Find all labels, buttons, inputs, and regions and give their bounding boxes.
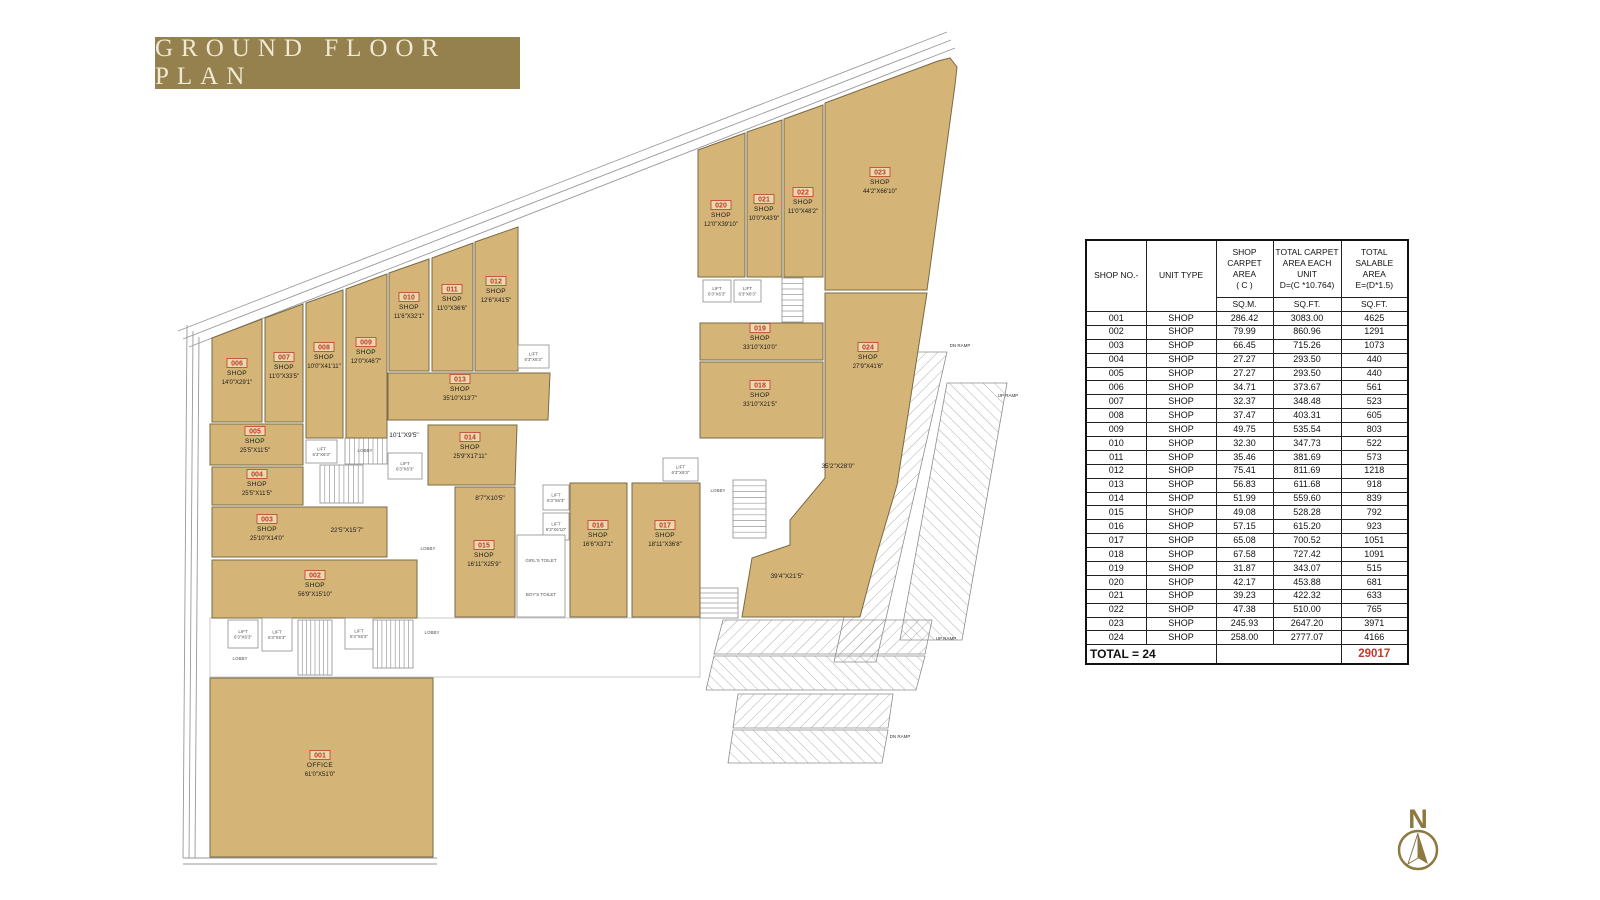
unit-type-label: SHOP (245, 438, 265, 445)
table-cell: 009 (1086, 423, 1146, 437)
table-cell: 923 (1341, 520, 1408, 534)
table-row: 001SHOP286.423083.004625 (1086, 312, 1408, 326)
unit-dimension: 10'0"X43'9" (749, 216, 780, 222)
table-cell: 522 (1341, 437, 1408, 451)
unit-number: 001 (314, 753, 326, 760)
table-cell: 860.96 (1273, 325, 1341, 339)
unit-dimension: 61'0"X51'0" (305, 772, 336, 778)
unit-number: 022 (797, 190, 809, 197)
table-cell: SHOP (1146, 548, 1216, 562)
ramp-label: DN RAMP (890, 734, 911, 739)
ramp-hatch (714, 620, 932, 654)
table-cell: 918 (1341, 478, 1408, 492)
room-label: LIFT (529, 352, 539, 357)
room-label: LIFT (238, 629, 248, 634)
column-header: TOTAL SALABLEAREAE=(D*1.5) (1341, 240, 1408, 298)
table-cell: 023 (1086, 617, 1146, 631)
table-cell: 4166 (1341, 631, 1408, 645)
table-cell: 605 (1341, 409, 1408, 423)
table-cell: 440 (1341, 367, 1408, 381)
room-label: LIFT (354, 629, 364, 634)
unit-type-label: SHOP (227, 370, 247, 377)
room-label: LIFT (712, 286, 722, 291)
table-row: 023SHOP245.932647.203971 (1086, 617, 1408, 631)
dimension-text: 39'4"X21'5" (770, 573, 804, 580)
dimension-text: 8'7"X10'5" (475, 495, 505, 502)
table-cell: 3083.00 (1273, 312, 1341, 326)
room-label: LIFT (551, 522, 561, 527)
table-cell: SHOP (1146, 506, 1216, 520)
unit-type-label: SHOP (460, 444, 480, 451)
shop-unit: 018SHOP33'10"X21'5" (700, 362, 823, 438)
table-row: 022SHOP47.38510.00765 (1086, 603, 1408, 617)
shop-unit: 002SHOP56'9"X15'10" (212, 560, 417, 618)
unit-number: 012 (490, 279, 502, 286)
table-row: 005SHOP27.27293.50440 (1086, 367, 1408, 381)
table-cell: 633 (1341, 589, 1408, 603)
unit-type-label: SHOP (314, 354, 334, 361)
unit-number: 002 (309, 573, 321, 580)
shop-unit: 004SHOP25'5"X11'5" (212, 467, 303, 505)
table-cell: 611.68 (1273, 478, 1341, 492)
room: LIFT6'3"X6'3" (518, 345, 549, 368)
staircase (298, 620, 332, 675)
table-cell: SHOP (1146, 589, 1216, 603)
column-header: SHOP NO.- (1086, 240, 1146, 312)
table-cell: 003 (1086, 339, 1146, 353)
unit-number: 015 (478, 543, 490, 550)
table-cell: 715.26 (1273, 339, 1341, 353)
unit-dimension: 35'10"X13'7" (443, 396, 477, 402)
table-cell: 1051 (1341, 534, 1408, 548)
room: LIFT6'3"X6'3" (345, 618, 373, 649)
table-cell: 27.27 (1216, 367, 1273, 381)
unit-number: 006 (231, 361, 243, 368)
table-cell: SHOP (1146, 423, 1216, 437)
room-label: LIFT (676, 465, 686, 470)
room-label: 6'3"X6'10" (546, 527, 567, 532)
unit-type-label: SHOP (754, 206, 774, 213)
table-cell: 010 (1086, 437, 1146, 451)
table-cell: 65.08 (1216, 534, 1273, 548)
room-label: LIFT (400, 461, 410, 466)
table-row: 013SHOP56.83611.68918 (1086, 478, 1408, 492)
room-label: LIFT (743, 286, 753, 291)
table-cell: 56.83 (1216, 478, 1273, 492)
table-cell: 348.48 (1273, 395, 1341, 409)
table-cell: 75.41 (1216, 464, 1273, 478)
table-row: 014SHOP51.99559.60839 (1086, 492, 1408, 506)
unit-dimension: 10'0"X41'11" (307, 364, 340, 370)
dimension-text: 10'1"X9'5" (389, 432, 419, 439)
unit-number: 005 (249, 429, 261, 436)
table-cell: 453.88 (1273, 575, 1341, 589)
room-label: 6'3"X6'3" (350, 634, 368, 639)
table-row: 018SHOP67.58727.421091 (1086, 548, 1408, 562)
table-cell: 681 (1341, 575, 1408, 589)
room-label: 6'3"X6'3" (672, 470, 690, 475)
table-cell: 012 (1086, 464, 1146, 478)
table-cell: SHOP (1146, 409, 1216, 423)
table-row: 006SHOP34.71373.67561 (1086, 381, 1408, 395)
unit-number: 003 (261, 517, 273, 524)
unit-number: 020 (715, 203, 727, 210)
unit-dimension: 33'10"X21'5" (743, 402, 777, 408)
table-cell: 51.99 (1216, 492, 1273, 506)
area-label: LOBBY (357, 448, 372, 453)
table-row: 015SHOP49.08528.28792 (1086, 506, 1408, 520)
north-arrow: N (1399, 804, 1437, 869)
table-cell: 49.75 (1216, 423, 1273, 437)
table-cell: SHOP (1146, 450, 1216, 464)
unit-type-label: SHOP (655, 532, 675, 539)
table-cell: 727.42 (1273, 548, 1341, 562)
table-cell: 811.69 (1273, 464, 1341, 478)
shop-unit: 008SHOP10'0"X41'11" (306, 290, 343, 438)
shop-unit: 009SHOP12'0"X46'7" (346, 274, 387, 438)
shop-area (265, 304, 303, 422)
table-cell: 1218 (1341, 464, 1408, 478)
unit-dimension: 16'6"X37'1" (583, 542, 614, 548)
table-cell: SHOP (1146, 464, 1216, 478)
table-total-row: TOTAL = 2429017 (1086, 645, 1408, 665)
table-cell: 49.08 (1216, 506, 1273, 520)
room-label: 6'3"X6'3" (313, 452, 331, 457)
table-row: 017SHOP65.08700.521051 (1086, 534, 1408, 548)
unit-type-label: SHOP (858, 354, 878, 361)
table-cell: 67.58 (1216, 548, 1273, 562)
table-cell: 006 (1086, 381, 1146, 395)
table-cell: 013 (1086, 478, 1146, 492)
room: LIFT6'3"X6'3" (543, 485, 569, 510)
table-cell: SHOP (1146, 520, 1216, 534)
unit-number: 023 (874, 170, 886, 177)
table-cell: SHOP (1146, 367, 1216, 381)
table-cell: 66.45 (1216, 339, 1273, 353)
area-label: BOY'S TOILET (526, 592, 556, 597)
table-cell: 765 (1341, 603, 1408, 617)
table-cell: 528.28 (1273, 506, 1341, 520)
unit-dimension: 12'6"X41'5" (481, 298, 512, 304)
shop-unit: 010SHOP11'6"X32'1" (389, 259, 429, 371)
table-cell: 017 (1086, 534, 1146, 548)
ramp-hatch (706, 656, 925, 690)
table-cell: 39.23 (1216, 589, 1273, 603)
shop-unit: 014SHOP25'9"X17'11" (428, 425, 517, 485)
boundary-line (183, 325, 187, 858)
shop-unit: 023SHOP44'2"X66'10" (825, 58, 957, 290)
room-label: 6'3"X6'3" (739, 292, 757, 297)
table-cell: 422.32 (1273, 589, 1341, 603)
shop-area (700, 362, 823, 438)
room: LIFT6'3"X6'3" (262, 618, 292, 651)
unit-dimension: 18'11"X36'8" (648, 542, 681, 548)
shop-unit: 012SHOP12'6"X41'5" (475, 227, 518, 371)
table-cell: 005 (1086, 367, 1146, 381)
unit-dimension: 11'0"X48'2" (788, 209, 818, 215)
shop-unit: 016SHOP16'6"X37'1" (570, 483, 627, 617)
table-row: 004SHOP27.27293.50440 (1086, 353, 1408, 367)
room-label: LIFT (272, 630, 282, 635)
area-label: LOBBY (424, 630, 439, 635)
unit-dimension: 44'2"X66'10" (863, 189, 897, 195)
table-cell: 535.54 (1273, 423, 1341, 437)
unit-dimension: 16'11"X25'9" (467, 562, 500, 568)
table-row: 012SHOP75.41811.691218 (1086, 464, 1408, 478)
room: LIFT6'3"X6'3" (228, 620, 258, 648)
table-cell: 286.42 (1216, 312, 1273, 326)
table-row: 016SHOP57.15615.20923 (1086, 520, 1408, 534)
table-cell: 020 (1086, 575, 1146, 589)
table-cell: 792 (1341, 506, 1408, 520)
unit-number: 010 (403, 295, 415, 302)
table-cell: 515 (1341, 562, 1408, 576)
unit-number: 007 (278, 355, 290, 362)
table-cell: 011 (1086, 450, 1146, 464)
shop-unit: 015SHOP16'11"X25'9" (455, 487, 515, 617)
unit-type-label: SHOP (588, 532, 608, 539)
unit-dimension: 14'0"X29'1" (222, 380, 253, 386)
unit-number: 016 (592, 523, 604, 530)
ramp-label: UP RAMP (998, 393, 1018, 398)
table-cell: 573 (1341, 450, 1408, 464)
table-cell: 803 (1341, 423, 1408, 437)
unit-type-label: SHOP (793, 199, 813, 206)
table-cell: 3971 (1341, 617, 1408, 631)
table-cell: 373.67 (1273, 381, 1341, 395)
shop-area (632, 483, 700, 617)
table-cell: SHOP (1146, 603, 1216, 617)
table-row: 020SHOP42.17453.88681 (1086, 575, 1408, 589)
room-outline (517, 535, 565, 617)
shop-area (825, 58, 957, 290)
boundary-line (189, 331, 193, 858)
unit-number: 017 (659, 523, 671, 530)
table-cell: 001 (1086, 312, 1146, 326)
table-row: 021SHOP39.23422.32633 (1086, 589, 1408, 603)
shop-unit: 005SHOP25'5"X11'5" (210, 424, 303, 465)
column-header: SHOPCARPETAREA( C ) (1216, 240, 1273, 298)
room: LIFT6'3"X6'3" (388, 453, 422, 479)
unit-type-label: SHOP (442, 296, 462, 303)
total-spacer (1216, 645, 1341, 665)
unit-type-label: SHOP (399, 304, 419, 311)
north-letter: N (1408, 804, 1428, 834)
unit-type-label: SHOP (305, 582, 325, 589)
unit-number: 004 (251, 472, 263, 479)
table-cell: 37.47 (1216, 409, 1273, 423)
unit-type-label: SHOP (474, 552, 494, 559)
north-pointer-light (1408, 833, 1418, 864)
table-cell: 42.17 (1216, 575, 1273, 589)
table-cell: SHOP (1146, 312, 1216, 326)
shop-unit: 006SHOP14'0"X29'1" (212, 319, 262, 422)
column-header: UNIT TYPE (1146, 240, 1216, 312)
area-label: GIRL'S TOILET (525, 558, 556, 563)
staircase (373, 620, 413, 668)
ramp-hatch (733, 694, 893, 728)
table-cell: 024 (1086, 631, 1146, 645)
table-cell: 004 (1086, 353, 1146, 367)
unit-type-label: SHOP (711, 212, 731, 219)
table-cell: 440 (1341, 353, 1408, 367)
table-cell: 014 (1086, 492, 1146, 506)
total-salable-value: 29017 (1341, 645, 1408, 665)
unit-number: 021 (758, 197, 770, 204)
table-cell: SHOP (1146, 575, 1216, 589)
shop-unit: 013SHOP35'10"X13'7" (388, 373, 550, 420)
shop-unit: 022SHOP11'0"X48'2" (784, 105, 823, 277)
table-cell: SHOP (1146, 492, 1216, 506)
table-row: 008SHOP37.47403.31605 (1086, 409, 1408, 423)
table-cell: SHOP (1146, 353, 1216, 367)
unit-number: 018 (754, 383, 766, 390)
room: LIFT6'3"X6'3" (663, 458, 698, 481)
table-cell: 839 (1341, 492, 1408, 506)
unit-dimension: 25'5"X11'5" (242, 491, 272, 497)
room-label: 6'3"X6'3" (396, 467, 414, 472)
unit-number: 009 (360, 340, 372, 347)
unit-dimension: 25'10"X14'0" (250, 536, 284, 542)
unit-number: 008 (318, 345, 330, 352)
table-cell: 403.31 (1273, 409, 1341, 423)
staircase (320, 465, 363, 503)
table-cell: 245.93 (1216, 617, 1273, 631)
ramp-hatch (728, 730, 888, 763)
shop-unit: 017SHOP18'11"X36'8" (632, 483, 700, 617)
area-table: SHOP NO.-UNIT TYPESHOPCARPETAREA( C )TOT… (1085, 239, 1409, 665)
table-cell: 347.73 (1273, 437, 1341, 451)
room-label: 6'3"X6'3" (547, 498, 565, 503)
unit-type-label: SHOP (247, 481, 267, 488)
table-row: 024SHOP258.002777.074166 (1086, 631, 1408, 645)
unit-type-label: SHOP (750, 392, 770, 399)
dimension-text: 22'5"X15'7" (330, 527, 364, 534)
table-cell: 2647.20 (1273, 617, 1341, 631)
table-cell: 007 (1086, 395, 1146, 409)
room: LIFT6'3"X6'3" (734, 280, 761, 302)
staircase (782, 278, 803, 322)
room-label: 6'3"X6'3" (525, 357, 543, 362)
shop-area (212, 560, 417, 618)
table-cell: SHOP (1146, 478, 1216, 492)
unit-dimension: 33'10"X10'0" (743, 345, 777, 351)
table-cell: 008 (1086, 409, 1146, 423)
table-cell: 016 (1086, 520, 1146, 534)
room-label: LIFT (551, 493, 561, 498)
table-cell: 79.99 (1216, 325, 1273, 339)
table-cell: 615.20 (1273, 520, 1341, 534)
room (517, 535, 565, 617)
column-header: TOTAL CARPETAREA EACH UNITD=(C *10.764) (1273, 240, 1341, 298)
unit-number: 019 (754, 326, 766, 333)
table-row: 009SHOP49.75535.54803 (1086, 423, 1408, 437)
table-cell: 1073 (1341, 339, 1408, 353)
table-cell: SHOP (1146, 325, 1216, 339)
column-subheader: SQ.FT. (1341, 298, 1408, 312)
table-cell: 35.46 (1216, 450, 1273, 464)
shop-unit: 011SHOP11'0"X36'6" (432, 243, 473, 371)
table-cell: 32.37 (1216, 395, 1273, 409)
unit-type-label: SHOP (257, 526, 277, 533)
column-subheader: SQ.M. (1216, 298, 1273, 312)
table-cell: 57.15 (1216, 520, 1273, 534)
unit-type-label: SHOP (356, 349, 376, 356)
north-pointer-dark (1418, 833, 1428, 864)
page: GROUND FLOOR PLAN 001OFFICE61'0"X51'0"00… (0, 0, 1600, 900)
table-cell: 381.69 (1273, 450, 1341, 464)
table-cell: 021 (1086, 589, 1146, 603)
ramp-label: UP RAMP (936, 636, 956, 641)
table-cell: 2777.07 (1273, 631, 1341, 645)
shop-unit: 007SHOP11'0"X33'5" (265, 304, 303, 422)
unit-number: 024 (862, 345, 874, 352)
table-cell: 293.50 (1273, 353, 1341, 367)
table-cell: 31.87 (1216, 562, 1273, 576)
unit-dimension: 11'0"X33'5" (269, 374, 299, 380)
table-cell: SHOP (1146, 534, 1216, 548)
table-cell: SHOP (1146, 617, 1216, 631)
table-cell: 47.38 (1216, 603, 1273, 617)
unit-dimension: 11'0"X36'6" (437, 306, 467, 312)
area-label: LOBBY (420, 546, 435, 551)
table-row: 011SHOP35.46381.69573 (1086, 450, 1408, 464)
table-cell: 4625 (1341, 312, 1408, 326)
unit-dimension: 12'0"X46'7" (351, 359, 382, 365)
table-cell: 32.30 (1216, 437, 1273, 451)
table-cell: 559.60 (1273, 492, 1341, 506)
room-label: 6'3"X6'3" (234, 635, 252, 640)
unit-dimension: 25'5"X11'5" (240, 448, 270, 454)
room-label: 6'3"X6'3" (268, 635, 286, 640)
room-label: 6'3"X6'3" (708, 292, 726, 297)
table-cell: 258.00 (1216, 631, 1273, 645)
room: LIFT6'3"X6'3" (306, 440, 337, 463)
table-row: 003SHOP66.45715.261073 (1086, 339, 1408, 353)
table-cell: SHOP (1146, 631, 1216, 645)
shop-unit: 021SHOP10'0"X43'9" (747, 120, 782, 277)
table-cell: 1291 (1341, 325, 1408, 339)
unit-type-label: OFFICE (307, 762, 333, 769)
table-cell: 018 (1086, 548, 1146, 562)
unit-type-label: SHOP (750, 335, 770, 342)
room-label: LIFT (317, 447, 327, 452)
shop-unit: 019SHOP33'10"X10'0" (700, 323, 823, 360)
table-cell: SHOP (1146, 562, 1216, 576)
table-cell: SHOP (1146, 381, 1216, 395)
table-cell: 34.71 (1216, 381, 1273, 395)
table-cell: 1091 (1341, 548, 1408, 562)
shop-area (570, 483, 627, 617)
area-label: LOBBY (710, 488, 725, 493)
staircase (700, 588, 738, 618)
table-cell: 019 (1086, 562, 1146, 576)
table-cell: 27.27 (1216, 353, 1273, 367)
staircase (733, 480, 766, 538)
table-cell: 561 (1341, 381, 1408, 395)
unit-dimension: 12'0"X39'10" (704, 222, 738, 228)
total-label: TOTAL = 24 (1086, 645, 1216, 665)
unit-number: 011 (446, 287, 457, 294)
table-row: 019SHOP31.87343.07515 (1086, 562, 1408, 576)
table-cell: 293.50 (1273, 367, 1341, 381)
area-label: LOBBY (232, 656, 247, 661)
table-cell: 523 (1341, 395, 1408, 409)
table-row: 002SHOP79.99860.961291 (1086, 325, 1408, 339)
table-row: 010SHOP32.30347.73522 (1086, 437, 1408, 451)
unit-dimension: 25'9"X17'11" (453, 454, 486, 460)
unit-type-label: SHOP (450, 386, 470, 393)
